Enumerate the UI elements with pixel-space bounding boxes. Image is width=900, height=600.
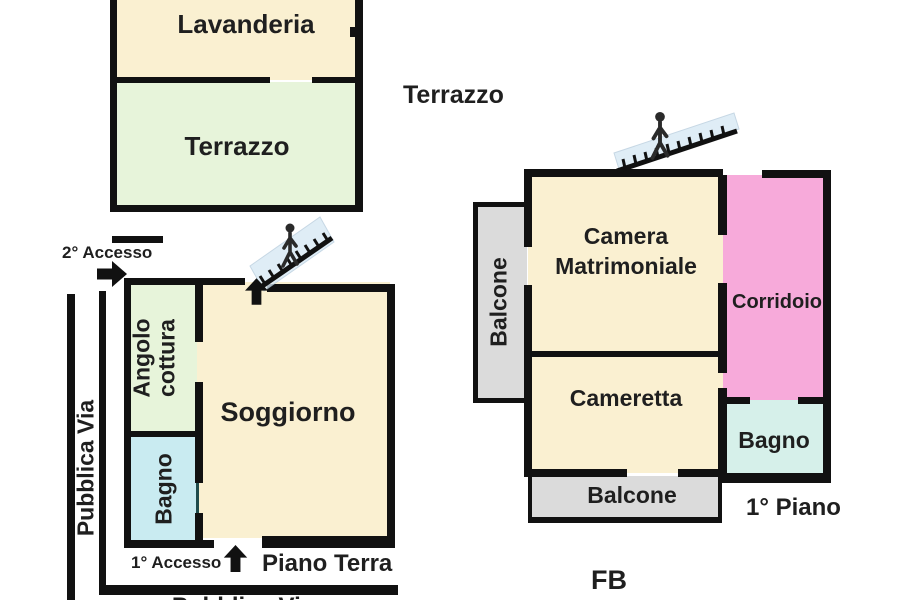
wall-segment <box>524 469 627 477</box>
room-label-camera-matrimoniale: Camera Matrimoniale <box>555 222 697 282</box>
wall-segment <box>718 397 750 404</box>
camera-line1: Camera <box>555 222 697 252</box>
room-label-soggiorno: Soggiorno <box>221 398 356 428</box>
wall-segment <box>262 536 395 548</box>
room-label-corridoio: Corridoio <box>732 291 822 313</box>
floor-label-primo-piano: 1° Piano <box>746 495 841 521</box>
wall-segment <box>387 284 395 548</box>
wall-segment <box>355 0 363 212</box>
wall-segment <box>312 77 363 83</box>
arrow-right-icon <box>97 261 127 287</box>
wall-segment <box>798 397 831 404</box>
wall-segment <box>528 351 723 357</box>
label-secondo-accesso: 2° Accesso <box>62 244 152 263</box>
wall-window-notch <box>350 27 355 37</box>
stairs-icon <box>603 103 748 178</box>
wall-segment <box>718 175 727 235</box>
wall-segment <box>124 278 245 285</box>
floor-label-piano-terra: Piano Terra <box>262 551 392 577</box>
room-label-lavanderia: Lavanderia <box>177 10 314 39</box>
label-pubblica-via-left: Pubblica Via <box>73 400 98 536</box>
angolo-line2: cottura <box>155 318 180 397</box>
wall-segment <box>524 285 532 477</box>
wall-segment <box>195 436 203 483</box>
wall-segment <box>524 169 532 247</box>
arrow-up-icon <box>245 277 268 306</box>
wall-segment <box>718 283 727 373</box>
room-camera-cameretta-fill <box>528 175 723 473</box>
camera-line2: Matrimoniale <box>555 252 697 282</box>
street-line-vertical-inner <box>99 291 106 588</box>
wall-segment <box>110 0 117 212</box>
arrow-up-icon <box>222 545 249 572</box>
wall-segment <box>762 170 831 178</box>
street-mark <box>112 236 163 243</box>
wall-segment <box>678 469 723 477</box>
room-label-bagno-first: Bagno <box>738 428 810 453</box>
room-corridoio <box>723 175 824 400</box>
wall-segment <box>195 382 203 438</box>
wall-segment <box>110 77 270 83</box>
wall-segment <box>823 170 831 482</box>
wall-segment <box>195 513 203 546</box>
label-pubblica-via-bottom: Pubblica Via <box>172 594 314 600</box>
signature: FB <box>591 566 627 596</box>
room-label-balcone-left: Balcone <box>486 257 511 346</box>
label-primo-accesso: 1° Accesso <box>131 554 221 573</box>
wall-segment <box>718 473 831 483</box>
room-label-cameretta: Cameretta <box>570 386 683 411</box>
outer-label-terrazzo: Terrazzo <box>403 82 504 110</box>
wall-segment <box>195 282 203 342</box>
angolo-line1: Angolo <box>130 318 155 397</box>
room-label-bagno-ground: Bagno <box>151 453 176 525</box>
wall-segment <box>127 431 203 437</box>
room-label-angolo-cottura: Angolo cottura <box>130 318 181 397</box>
floor-plan: Lavanderia Terrazzo Terrazzo 2° Accesso … <box>0 0 900 600</box>
wall-segment <box>110 205 363 212</box>
room-label-terrazzo: Terrazzo <box>185 132 290 161</box>
room-label-balcone-bottom: Balcone <box>587 483 676 508</box>
